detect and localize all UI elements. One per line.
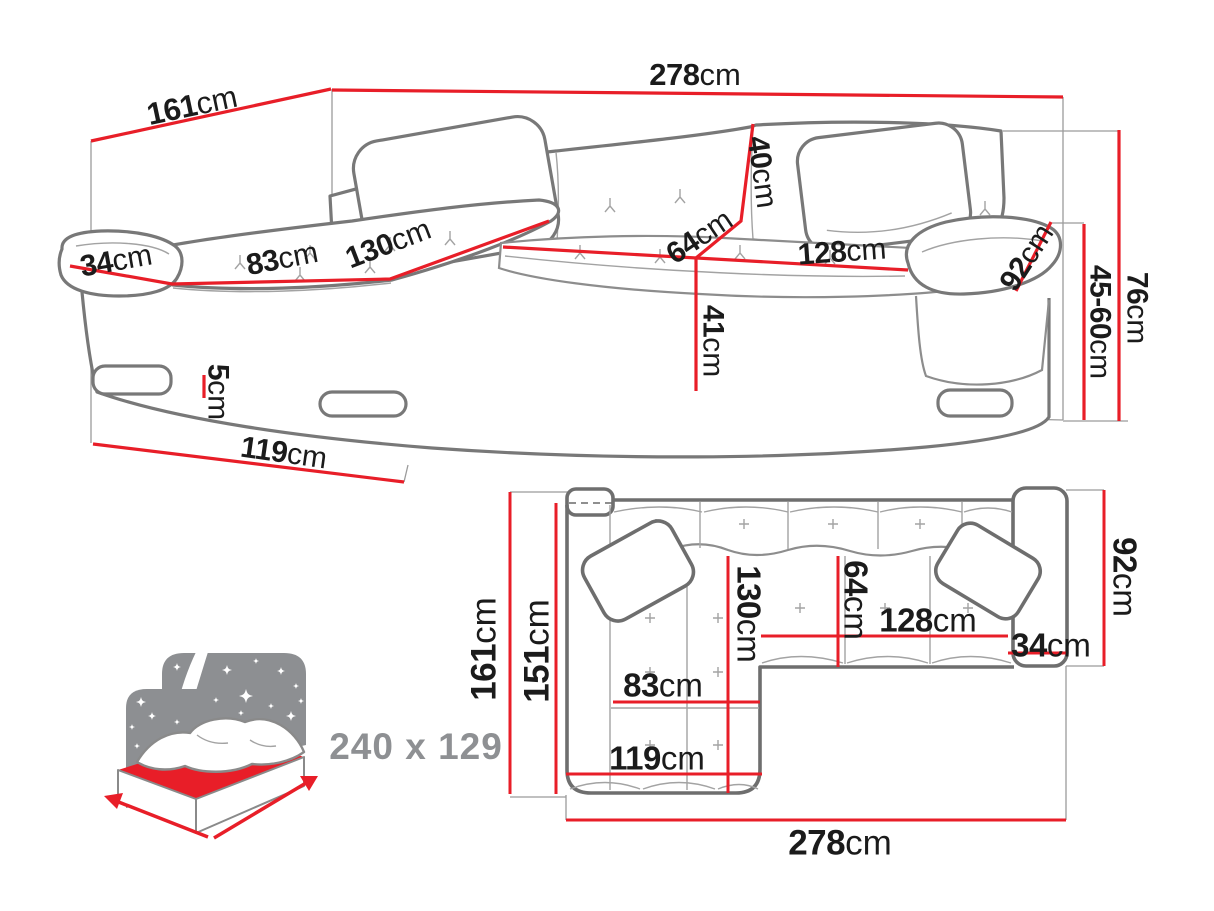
label-total-height: 76cm xyxy=(1121,272,1154,344)
sofa-foot xyxy=(93,366,171,394)
label-plan-armrest-length: 92cm xyxy=(1106,537,1143,617)
plan-view: 161cm 151cm 130cm 64cm 128cm 34cm 92cm 8… xyxy=(464,488,1143,862)
plan-pillow-left xyxy=(577,515,699,626)
label-plan-seat-width: 128cm xyxy=(879,602,977,639)
label-plan-armrest-width: 34cm xyxy=(1011,627,1091,664)
sleeping-function-icon: 240 x 129 xyxy=(104,652,503,838)
plan-corner-block xyxy=(567,489,613,515)
label-plan-chaise-length: 130cm xyxy=(730,565,767,663)
sofa-foot xyxy=(938,390,1012,416)
sofa-foot xyxy=(320,392,406,416)
sleeping-size-label: 240 x 129 xyxy=(329,726,503,767)
label-plan-seat-depth: 64cm xyxy=(837,560,874,640)
label-seat-front-height: 41cm xyxy=(697,305,730,377)
label-plan-chaise-outer-length: 119cm xyxy=(609,740,705,777)
perspective-view: 278cm 161cm 34cm 83cm 130cm 40cm 64cm 12… xyxy=(59,57,1153,482)
label-leg-height: 5cm xyxy=(202,364,235,420)
label-total-depth: 161cm xyxy=(144,79,241,132)
label-plan-inner-depth: 151cm xyxy=(517,599,556,703)
label-plan-total-width: 278cm xyxy=(788,823,892,862)
furniture-dimension-diagram: 278cm 161cm 34cm 83cm 130cm 40cm 64cm 12… xyxy=(0,0,1214,911)
label-plan-total-depth: 161cm xyxy=(464,597,503,701)
label-plan-chaise-cushion-width: 83cm xyxy=(623,667,703,704)
label-seat-width: 128cm xyxy=(797,232,888,271)
label-total-width: 278cm xyxy=(649,57,741,92)
label-seat-height: 45-60cm xyxy=(1084,265,1117,379)
